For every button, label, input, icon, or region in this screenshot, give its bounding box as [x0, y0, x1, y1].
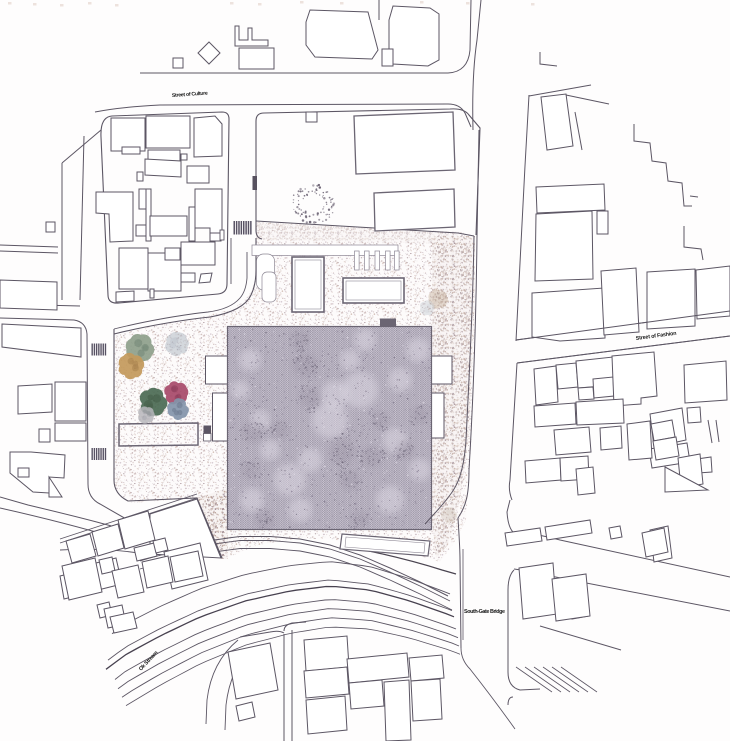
svg-text:South-Gate Bridge: South-Gate Bridge: [464, 609, 505, 615]
